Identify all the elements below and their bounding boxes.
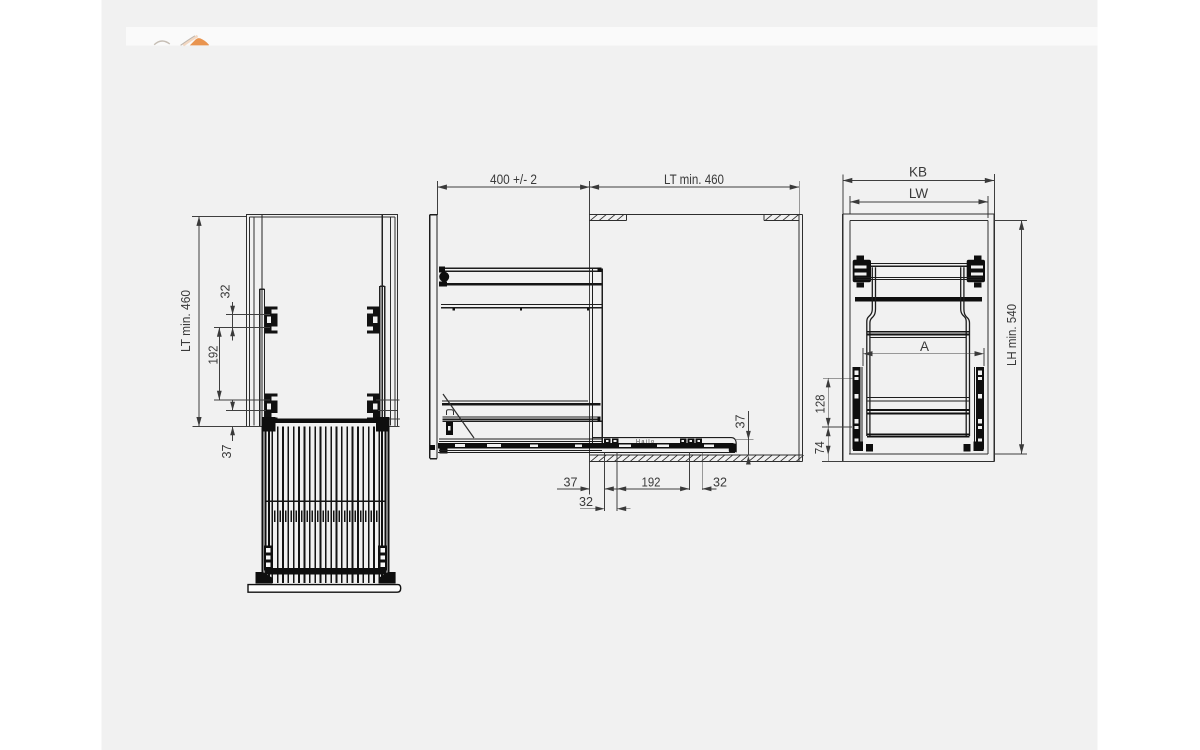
svg-text:32: 32 bbox=[713, 474, 727, 489]
svg-text:192: 192 bbox=[206, 346, 221, 365]
svg-text:128: 128 bbox=[814, 394, 828, 413]
svg-text:192: 192 bbox=[642, 474, 661, 489]
svg-text:74: 74 bbox=[813, 441, 827, 454]
svg-text:LT min. 460: LT min. 460 bbox=[178, 290, 193, 352]
svg-text:400 +/- 2: 400 +/- 2 bbox=[490, 172, 537, 187]
svg-text:KB: KB bbox=[909, 165, 927, 180]
svg-text:A: A bbox=[920, 339, 929, 354]
svg-text:LT min. 460: LT min. 460 bbox=[664, 172, 724, 187]
svg-text:37: 37 bbox=[219, 445, 234, 459]
svg-text:Hailo: Hailo bbox=[636, 439, 654, 445]
svg-text:37: 37 bbox=[733, 415, 748, 429]
svg-text:32: 32 bbox=[218, 285, 233, 299]
svg-text:LW: LW bbox=[909, 186, 929, 201]
svg-text:37: 37 bbox=[564, 474, 578, 489]
svg-text:32: 32 bbox=[579, 494, 593, 509]
svg-text:LH min. 540: LH min. 540 bbox=[1004, 304, 1019, 366]
